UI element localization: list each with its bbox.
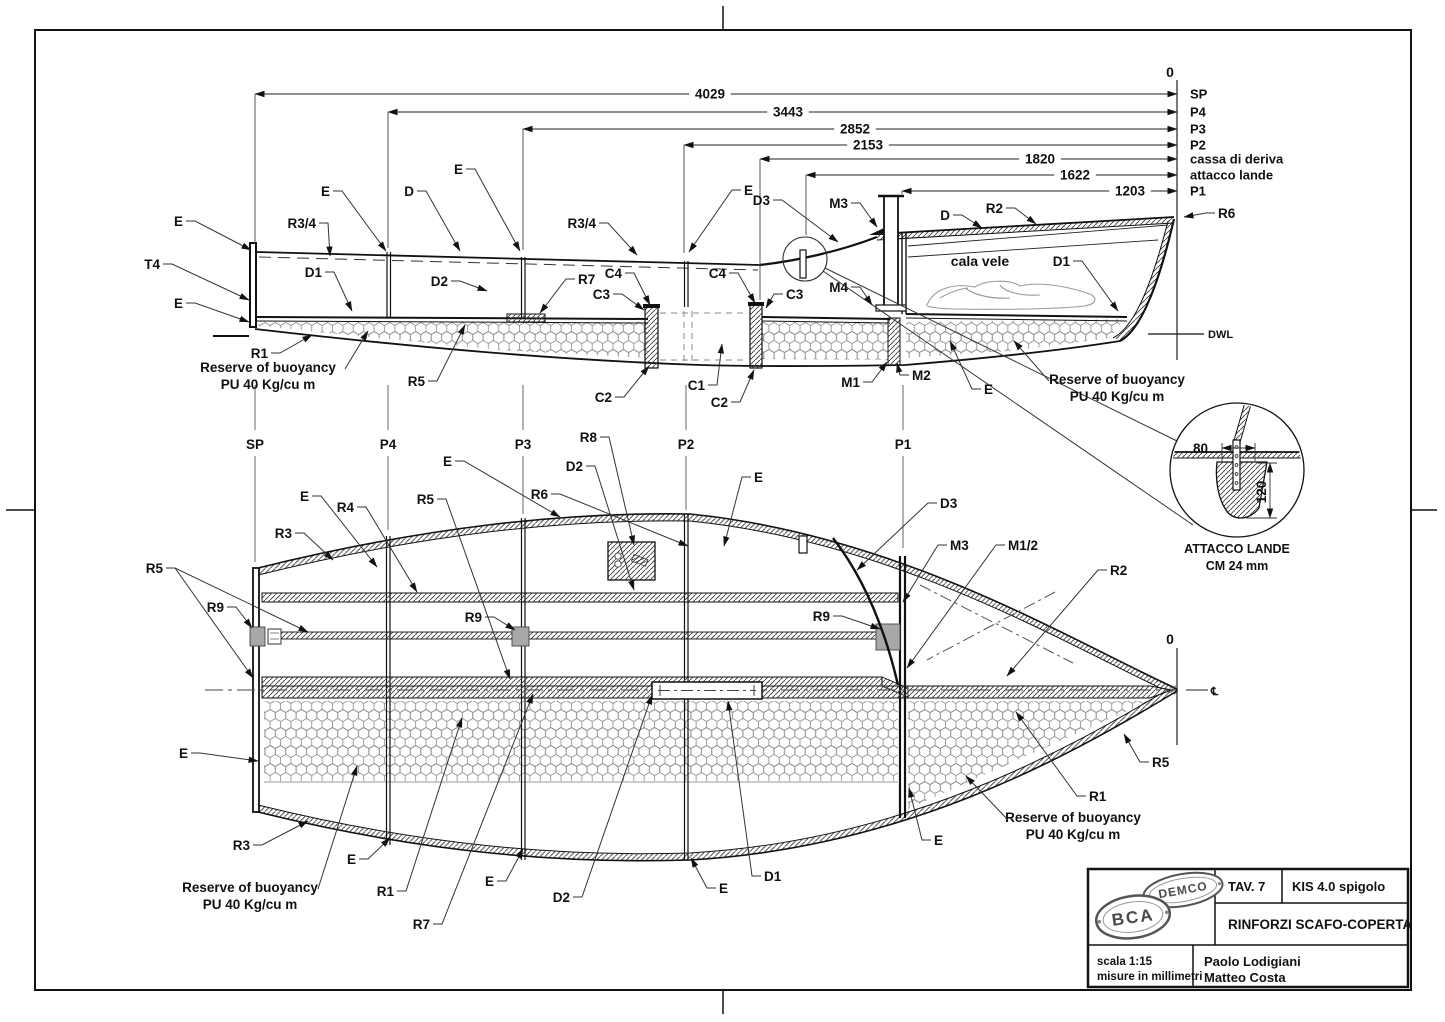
dwl-label: DWL [1208,329,1233,341]
annotation-label: C3 [593,287,611,302]
tie-rod-r9 [268,632,884,639]
buoyancy-note-line: PU 40 Kg/cu m [1026,827,1121,842]
leader-line [729,273,755,303]
annotation-label: E [321,184,330,199]
annotation-label: R5 [417,492,435,507]
mast-step-r8 [608,542,655,580]
dimension-value: 2153 [853,138,884,153]
leader-line [857,503,937,570]
dimension-system: 0 4029SP3443P42852P32153P21820cassa di d… [255,64,1284,360]
leader-line [615,366,649,397]
leader-line [325,272,352,311]
boat-plan-drawing: DWL cala vele 0 4029SP3443P42852P32153P2… [0,0,1445,1022]
annotation-label: E [984,382,993,397]
leader-line [163,264,249,300]
leader-line [319,223,330,256]
leader-line [599,223,637,255]
annotation-label: E [174,214,183,229]
leader-line [271,335,312,353]
annotation-label: M4 [829,280,848,295]
author-2: Matteo Costa [1204,970,1286,985]
leader-line [731,370,754,402]
annotation-label: C4 [605,266,623,281]
annotation-label: R3 [233,838,251,853]
annotation-label: E [300,489,309,504]
units-label: misure in millimetri [1097,971,1202,983]
daggerboard-slot-plan [652,682,762,699]
station-label: P1 [895,437,912,452]
mast-bulkhead-m1-m2 [888,318,900,365]
leader-line [691,858,716,888]
leader-line [345,331,368,369]
dimension-station-label: P2 [1190,138,1206,153]
station-label: P2 [678,437,695,452]
leader-line [953,215,982,228]
leader-line [191,753,258,761]
annotation-label: E [179,746,188,761]
annotation-label: E [454,162,463,177]
annotation-label: T4 [144,257,160,272]
detail-dim-80: 80 [1193,441,1208,456]
buoyancy-foam-aft [258,322,648,358]
sail-bag [927,281,1095,309]
annotation-label: D1 [305,265,323,280]
annotation-label: E [719,881,728,896]
annotation-label: D2 [566,459,583,474]
annotation-label: R6 [1218,206,1236,221]
annotation-label: E [485,874,494,889]
annotation-label: R4 [337,500,355,515]
annotation-label: R9 [207,600,224,615]
annotation-label: D2 [553,890,570,905]
annotation-label: C2 [711,395,728,410]
buoyancy-note-line: Reserve of buoyancy [200,360,336,375]
scale-label: scala 1:15 [1097,956,1153,968]
annotation-label: R1 [377,884,395,899]
leader-line [540,279,575,313]
dimension-station-label: cassa di deriva [1190,152,1284,167]
annotation-label: R6 [531,487,549,502]
annotation-label: R8 [580,430,598,445]
leader-line [1124,734,1149,762]
leader-line [1007,570,1107,676]
dimension-value: 1820 [1025,152,1055,167]
annotation-label: C2 [595,390,612,405]
title-block: DEMCO BCA TAV. 7 KIS 4.0 spigolo RINFORZ… [1088,867,1412,987]
annotation-label: M1 [841,375,860,390]
annotation-label: D3 [940,496,958,511]
dimension-station-label: SP [1190,87,1208,102]
centerline-symbol: ℄ [1210,686,1219,698]
plan-view: 0 ℄ [205,514,1219,861]
leader-line [451,281,487,291]
leader-line [227,607,252,628]
annotation-label: C4 [709,266,727,281]
buoyancy-note-line: Reserve of buoyancy [1005,810,1141,825]
leader-line [766,294,783,308]
annotation-label: R2 [1110,563,1127,578]
annotation-label: E [934,833,943,848]
r7-stringer-piece [507,314,545,322]
zero-bow-label: 0 [1166,631,1174,647]
annotation-label: R9 [813,609,830,624]
leader-line [625,273,650,305]
buoyancy-note-line: PU 40 Kg/cu m [221,377,316,392]
annotation-label: R3 [275,526,293,541]
leader-line [907,545,1005,668]
annotation-label: M3 [829,196,848,211]
leader-line [333,191,386,251]
annotation-label: R1 [1089,789,1107,804]
annotation-label: R9 [465,610,482,625]
dimension-value: 1203 [1115,184,1146,199]
annotation-label: R5 [1152,755,1170,770]
dimension-value: 1622 [1060,168,1090,183]
annotation-label: D1 [764,869,782,884]
annotation-label: E [443,454,452,469]
annotation-label: C1 [688,378,706,393]
leader-line [186,221,251,250]
annotation-label: R1 [251,346,269,361]
leader-line [175,568,253,678]
cala-vele-label: cala vele [951,253,1010,269]
leader-line [1006,208,1036,224]
detail-attacco-lande: 80 120 ATTACCO LANDE CM 24 mm [1170,403,1304,573]
drawing-title: RINFORZI SCAFO-COPERTA [1228,917,1412,932]
leader-line [417,191,460,251]
annotation-label: R2 [986,201,1003,216]
leader-line [613,294,644,310]
plan-foam-aft [264,701,898,781]
annotation-label: R3/4 [567,216,596,231]
chainplate-slot-plan [799,536,807,553]
dimension-station-label: P1 [1190,184,1206,199]
annotation-label: E [347,852,356,867]
annotation-label: E [754,470,763,485]
buoyancy-foam-fwd [906,319,1124,358]
leader-line [1073,261,1118,311]
annotation-label: D [404,184,414,199]
chainplate-strap [1233,440,1240,490]
annotation-label: C3 [786,287,804,302]
leader-line [359,838,390,859]
annotation-label: E [744,183,753,198]
annotation-label: M2 [912,368,931,383]
annotation-label: D [940,208,950,223]
buoyancy-note-line: PU 40 Kg/cu m [203,897,298,912]
annotation-label: D2 [431,274,448,289]
leader-line [851,203,877,227]
dimension-station-label: P3 [1190,122,1206,137]
station-label: SP [246,437,264,452]
project-code: KIS 4.0 spigolo [1292,879,1385,894]
annotation-label: E [174,296,183,311]
annotation-label: M3 [950,538,969,553]
detail-subtitle: CM 24 mm [1206,559,1269,573]
dimension-station-label: P4 [1190,105,1207,120]
annotation-label: R3/4 [287,216,316,231]
daggerboard-case [643,302,764,368]
annotation-label: M1/2 [1008,538,1038,553]
buoyancy-note-line: PU 40 Kg/cu m [1070,389,1165,404]
dimension-station-label: attacco lande [1190,168,1273,183]
stringer-r5 [262,677,882,686]
buoyancy-note-line: Reserve of buoyancy [1049,372,1185,387]
annotation-label: R7 [413,917,430,932]
buoyancy-foam-mid [762,322,888,360]
leader-line [689,190,741,252]
dimension-value: 3443 [773,105,804,120]
annotation-label: D3 [753,193,771,208]
drawing-sheet: DWL cala vele 0 4029SP3443P42852P32153P2… [0,0,1445,1022]
station-label: P4 [380,437,397,452]
leader-line [724,477,751,546]
plan-foam-fwd [908,701,1150,809]
tav-number: TAV. 7 [1228,879,1265,894]
leader-line [833,616,880,629]
annotation-label: D1 [1053,254,1071,269]
buoyancy-note-line: Reserve of buoyancy [182,880,318,895]
profile-view: DWL cala vele [213,196,1233,525]
leader-line [186,303,249,322]
dimension-value: 4029 [695,87,725,102]
annotation-label: R5 [146,561,164,576]
detail-title: ATTACCO LANDE [1184,542,1290,556]
fore-bay-cross [920,585,1073,663]
annotation-label: R7 [578,272,595,287]
annotation-label: R5 [408,374,426,389]
author-1: Paolo Lodigiani [1204,954,1301,969]
transom [250,243,256,327]
leader-line [253,821,308,845]
leader-line [466,169,520,251]
leader-line [1184,213,1215,217]
station-label: P3 [515,437,532,452]
zero-origin-label: 0 [1166,64,1174,80]
leader-line [600,437,634,545]
detail-dim-120: 120 [1254,481,1269,504]
leader-line [485,617,515,630]
stringer-r4 [262,593,898,602]
dimension-value: 2852 [840,122,870,137]
